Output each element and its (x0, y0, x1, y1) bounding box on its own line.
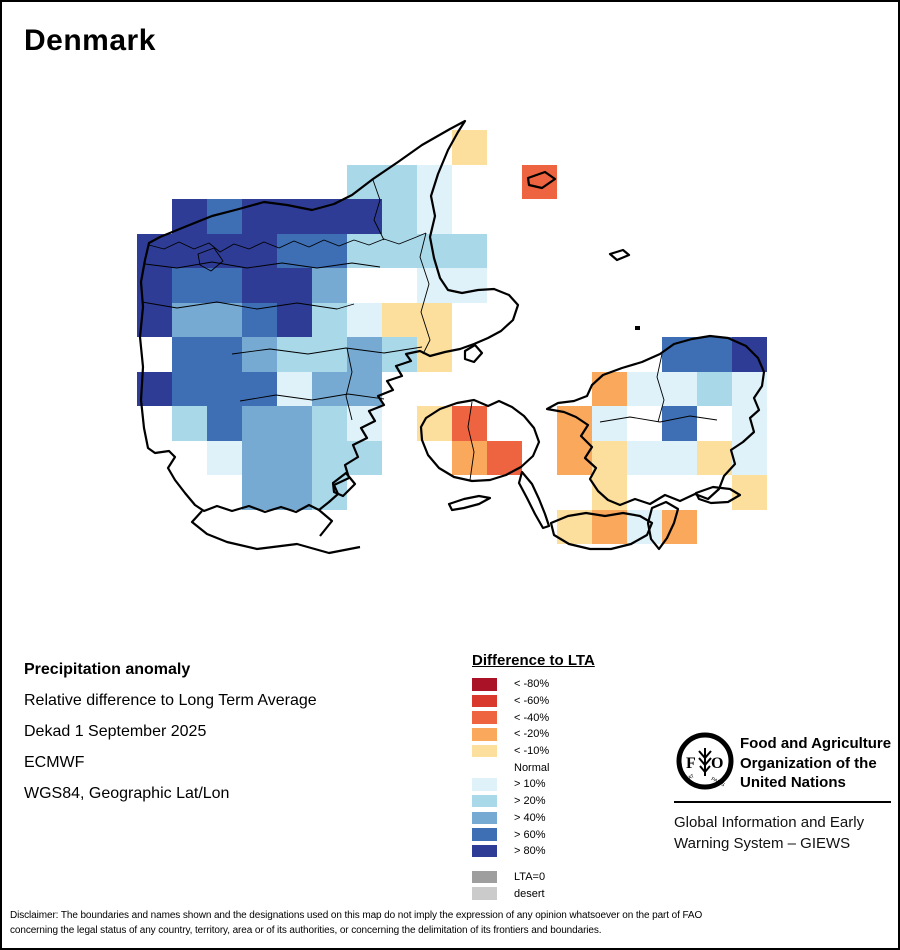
legend-row: > 40% (472, 810, 595, 827)
map-cell (277, 372, 312, 407)
legend-row: > 20% (472, 793, 595, 810)
legend-row: desert (472, 885, 595, 902)
map-cell (382, 303, 417, 338)
map-cell (347, 199, 382, 234)
legend-label: > 10% (514, 778, 546, 790)
legend-swatch (472, 887, 497, 900)
legend-label: > 80% (514, 845, 546, 857)
map-cell (662, 406, 697, 441)
giews-line2: Warning System – GIEWS (674, 833, 864, 854)
map-cell (312, 268, 347, 303)
map-cell (522, 165, 557, 200)
map-cell (417, 303, 452, 338)
map-cell (592, 475, 627, 510)
map-cell (172, 372, 207, 407)
legend-row: LTA=0 (472, 869, 595, 886)
map-cell (242, 475, 277, 510)
giews-name: Global Information and Early Warning Sys… (674, 812, 864, 854)
map-cell (557, 441, 592, 476)
giews-line1: Global Information and Early (674, 812, 864, 833)
map-cell (662, 372, 697, 407)
map-cell (417, 234, 452, 269)
map-cell (242, 234, 277, 269)
legend-label: desert (514, 888, 545, 900)
map-cell (347, 406, 382, 441)
fao-org-line1: Food and Agriculture (740, 734, 891, 754)
map-cell (242, 441, 277, 476)
map-cell (452, 234, 487, 269)
legend-title: Difference to LTA (472, 652, 595, 669)
map-cell (277, 475, 312, 510)
map-cell (417, 268, 452, 303)
legend-label: Normal (514, 762, 549, 774)
map-cell (137, 268, 172, 303)
map-cell (627, 372, 662, 407)
map-cell (417, 406, 452, 441)
map-cell (277, 199, 312, 234)
fao-org-name: Food and Agriculture Organization of the… (740, 734, 891, 793)
map-cell (207, 372, 242, 407)
map-cell (277, 268, 312, 303)
legend-label: < -40% (514, 712, 549, 724)
map-cell (207, 337, 242, 372)
map-cell (592, 510, 627, 545)
info-product: Precipitation anomaly (24, 654, 317, 685)
map-cell (172, 199, 207, 234)
map-cell (312, 234, 347, 269)
map-cell (662, 337, 697, 372)
map-cell (312, 199, 347, 234)
legend: Difference to LTA < -80%< -60%< -40%< -2… (472, 652, 595, 902)
map-cell (347, 234, 382, 269)
map-cell (592, 406, 627, 441)
map-cell (382, 234, 417, 269)
map-cell (662, 510, 697, 545)
map-cell (172, 303, 207, 338)
legend-swatch (472, 711, 497, 724)
map-cell (242, 337, 277, 372)
map-cell (312, 372, 347, 407)
map-cell (137, 372, 172, 407)
map-cell (662, 441, 697, 476)
map-cell (137, 303, 172, 338)
fao-logo-letter-f: F (686, 755, 696, 772)
map-cell (347, 337, 382, 372)
map-cell (452, 268, 487, 303)
map-cell (242, 303, 277, 338)
legend-label: < -10% (514, 745, 549, 757)
disclaimer-line2: concerning the legal status of any count… (10, 923, 890, 938)
legend-row: < -80% (472, 676, 595, 693)
map-cell (172, 337, 207, 372)
map-cell (417, 165, 452, 200)
map-cell (347, 441, 382, 476)
map-cell (242, 372, 277, 407)
info-description: Relative difference to Long Term Average (24, 685, 317, 716)
map-cell (242, 199, 277, 234)
map-cell (312, 406, 347, 441)
map-cell (242, 406, 277, 441)
map-cell (592, 441, 627, 476)
legend-row: < -40% (472, 709, 595, 726)
legend-label: < -60% (514, 695, 549, 707)
fao-org-line3: United Nations (740, 773, 891, 793)
map-cell (207, 441, 242, 476)
legend-swatch (472, 845, 497, 858)
info-dekad: Dekad 1 September 2025 (24, 716, 317, 747)
map-cell (417, 199, 452, 234)
map-cell (312, 475, 347, 510)
map-cell (732, 475, 767, 510)
map-cell (312, 303, 347, 338)
map-info-block: Precipitation anomaly Relative differenc… (24, 654, 317, 809)
map-cell (242, 268, 277, 303)
map-cell (487, 441, 522, 476)
legend-label: < -80% (514, 678, 549, 690)
info-projection: WGS84, Geographic Lat/Lon (24, 778, 317, 809)
legend-swatch (472, 812, 497, 825)
legend-swatch (472, 871, 497, 884)
map-cell (207, 303, 242, 338)
map-cell (382, 199, 417, 234)
map-cell (627, 510, 662, 545)
map-cell (382, 165, 417, 200)
map-cell (277, 406, 312, 441)
map-cell (207, 234, 242, 269)
map-cell (277, 337, 312, 372)
legend-row: < -10% (472, 743, 595, 760)
legend-swatch (472, 778, 497, 791)
disclaimer-line1: Disclaimer: The boundaries and names sho… (10, 908, 890, 923)
legend-swatch (472, 828, 497, 841)
map-cell (382, 337, 417, 372)
map-cell (312, 337, 347, 372)
map-cell (277, 303, 312, 338)
map-cell (697, 372, 732, 407)
map-cell (732, 337, 767, 372)
map-cell (347, 372, 382, 407)
map-cell (347, 303, 382, 338)
disclaimer: Disclaimer: The boundaries and names sho… (10, 908, 890, 938)
map-cell (207, 406, 242, 441)
fao-divider-line (674, 801, 891, 803)
fao-logo-letter-o: O (711, 755, 723, 772)
fao-logo: F O FIAT PANIS (674, 728, 736, 794)
legend-swatch (472, 795, 497, 808)
map-cell (417, 337, 452, 372)
map-cell (312, 441, 347, 476)
map-cell (172, 234, 207, 269)
map-cell (627, 441, 662, 476)
map-cell (592, 372, 627, 407)
legend-label: > 20% (514, 795, 546, 807)
legend-swatch (472, 728, 497, 741)
map-cell (452, 441, 487, 476)
legend-label: > 40% (514, 812, 546, 824)
map-cell (172, 268, 207, 303)
legend-swatch (472, 695, 497, 708)
legend-row: Normal (472, 759, 595, 776)
map-cell (697, 337, 732, 372)
legend-items: < -80%< -60%< -40%< -20%< -10%Normal> 10… (472, 676, 595, 860)
map-cell (732, 372, 767, 407)
map-sheet: Denmark (0, 0, 900, 950)
legend-swatch (472, 762, 497, 775)
map-cell (557, 510, 592, 545)
legend-label: > 60% (514, 829, 546, 841)
legend-swatch (472, 678, 497, 691)
legend-label: LTA=0 (514, 871, 545, 883)
fao-org-line2: Organization of the (740, 754, 891, 774)
map-cell (137, 234, 172, 269)
legend-label: < -20% (514, 728, 549, 740)
legend-row: > 60% (472, 826, 595, 843)
legend-row: < -60% (472, 693, 595, 710)
legend-extra-items: LTA=0desert (472, 869, 595, 902)
legend-row: > 10% (472, 776, 595, 793)
map-cell (732, 406, 767, 441)
map-cell (452, 406, 487, 441)
legend-row: > 80% (472, 843, 595, 860)
map-cell (277, 441, 312, 476)
map-cell (697, 441, 732, 476)
legend-swatch (472, 745, 497, 758)
map-cell (207, 268, 242, 303)
info-source: ECMWF (24, 747, 317, 778)
map-cell (277, 234, 312, 269)
map-cell (557, 406, 592, 441)
map-cell (207, 199, 242, 234)
map-cell (452, 130, 487, 165)
map-cell (347, 165, 382, 200)
map-cell (732, 441, 767, 476)
legend-row: < -20% (472, 726, 595, 743)
map-cell (172, 406, 207, 441)
